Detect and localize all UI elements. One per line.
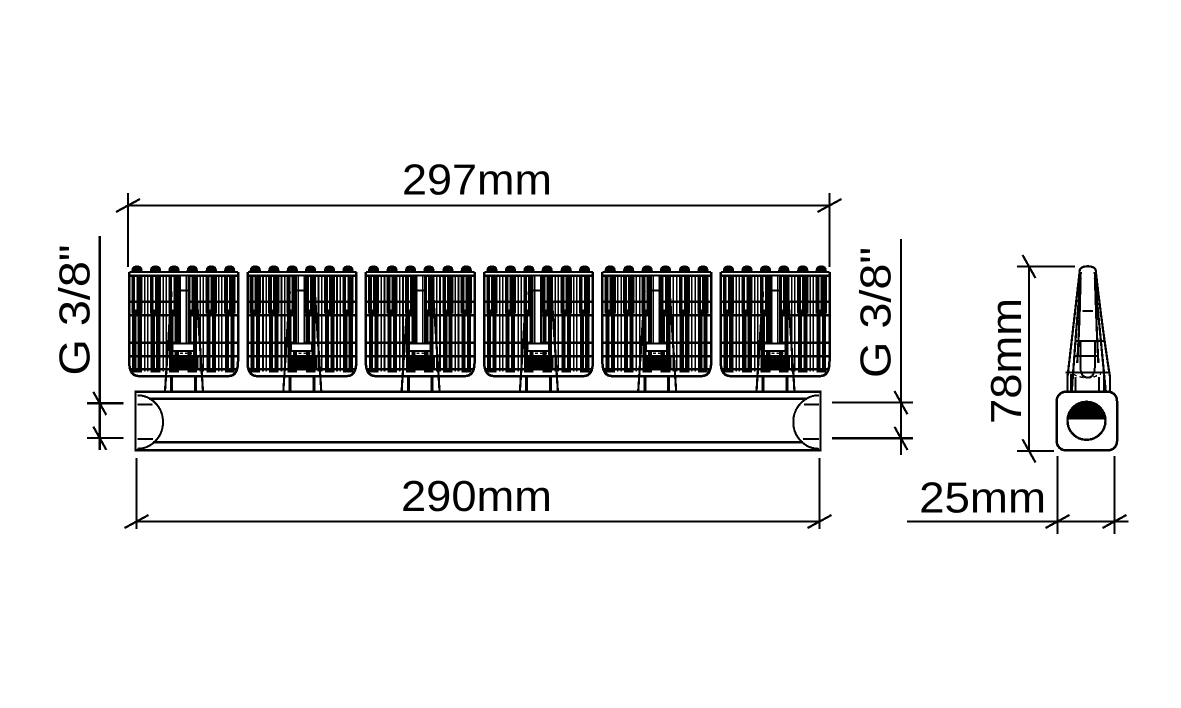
svg-text:G 3/8": G 3/8" [853, 247, 901, 378]
svg-text:78mm: 78mm [983, 298, 1031, 424]
svg-text:290mm: 290mm [401, 473, 552, 521]
svg-text:25mm: 25mm [919, 475, 1046, 523]
svg-text:G 3/8": G 3/8" [52, 245, 100, 376]
svg-text:297mm: 297mm [402, 157, 552, 205]
